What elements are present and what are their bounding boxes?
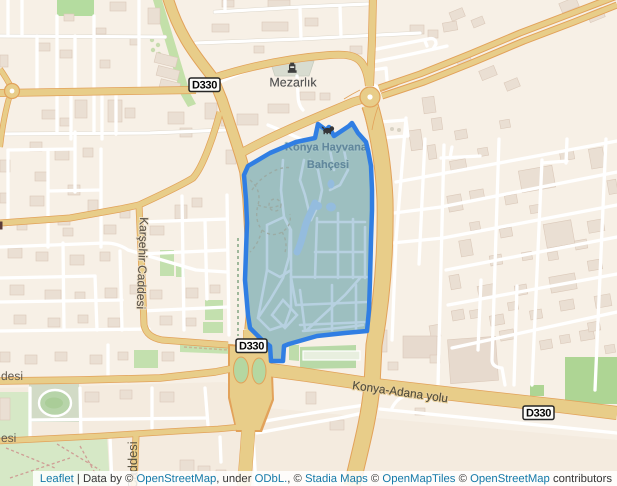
svg-text:D330: D330	[239, 341, 264, 353]
svg-text:desi: desi	[1, 369, 23, 383]
svg-text:Leaflet | Data by © OpenStreet: Leaflet | Data by © OpenStreetMap, under…	[40, 473, 612, 485]
svg-text:esi: esi	[1, 431, 16, 445]
svg-text:D330: D330	[192, 80, 217, 92]
svg-text:D330: D330	[526, 408, 551, 420]
svg-text:Mezarlık: Mezarlık	[269, 76, 317, 90]
